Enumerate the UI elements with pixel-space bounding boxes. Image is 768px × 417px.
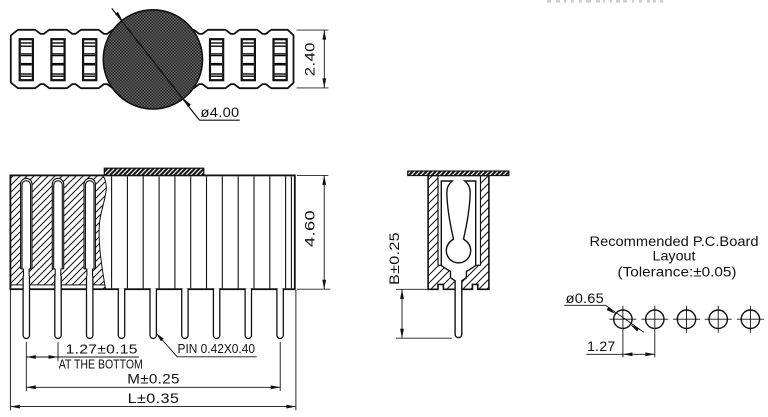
svg-text:1.27±0.15: 1.27±0.15 [66, 342, 138, 357]
svg-text:AT THE BOTTOM: AT THE BOTTOM [59, 358, 143, 372]
svg-text:Recommended P.C.Board: Recommended P.C.Board [590, 234, 759, 249]
svg-text:B±0.25: B±0.25 [387, 232, 402, 285]
svg-text:1.27: 1.27 [587, 339, 615, 354]
svg-text:M±0.25: M±0.25 [127, 371, 180, 386]
svg-text:ø0.65: ø0.65 [566, 291, 604, 306]
svg-text:PIN 0.42X0.40: PIN 0.42X0.40 [178, 342, 256, 356]
svg-text:L±0.35: L±0.35 [128, 391, 180, 406]
svg-text:ø4.00: ø4.00 [201, 104, 240, 120]
svg-text:(Tolerance:±0.05): (Tolerance:±0.05) [618, 265, 737, 280]
svg-text:Layout: Layout [653, 248, 696, 263]
svg-text:2.40: 2.40 [302, 42, 318, 76]
svg-text:4.60: 4.60 [302, 210, 318, 247]
